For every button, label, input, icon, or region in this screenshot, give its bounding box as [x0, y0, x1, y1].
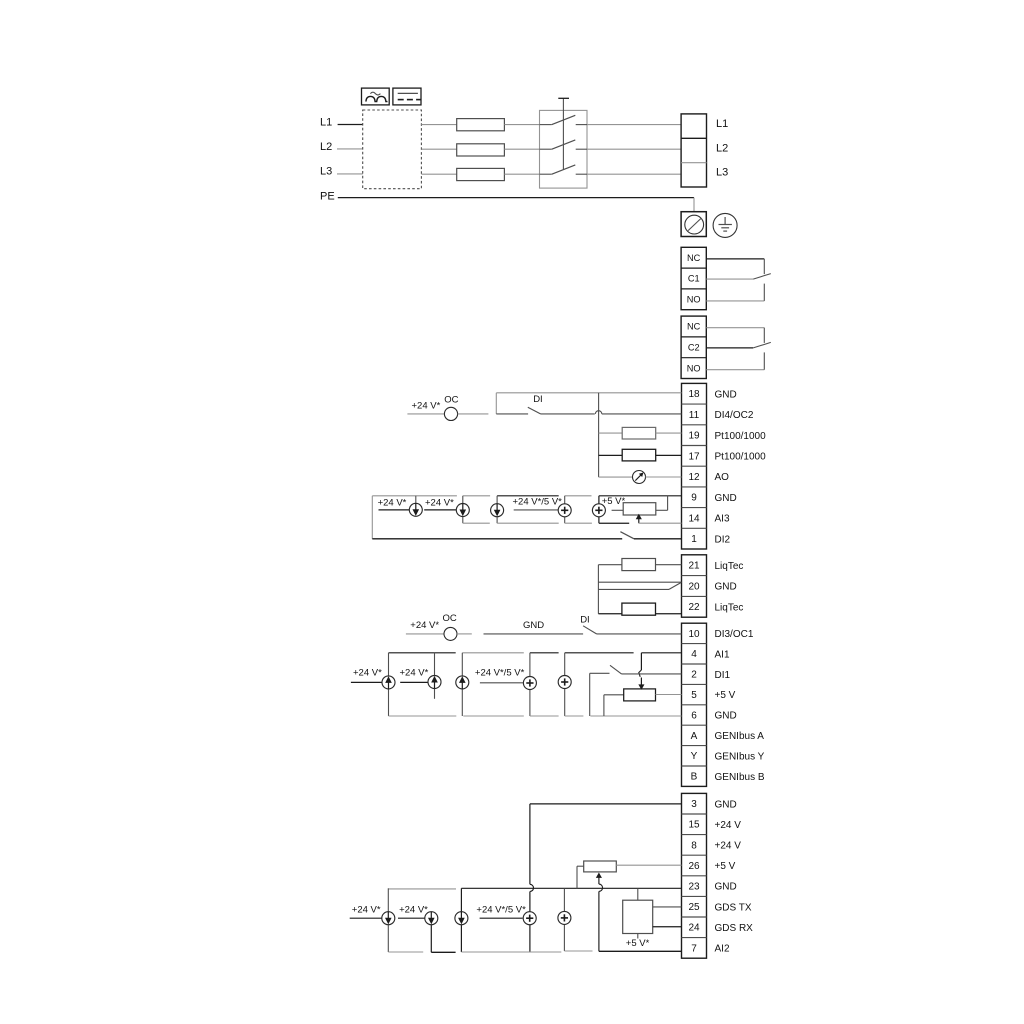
svg-text:5: 5: [691, 690, 697, 701]
svg-text:23: 23: [688, 882, 700, 893]
svg-text:AI1: AI1: [715, 649, 730, 660]
svg-text:22: 22: [688, 602, 700, 613]
svg-text:GDS TX: GDS TX: [715, 902, 752, 913]
svg-text:Y: Y: [691, 751, 698, 762]
svg-text:GENIbus Y: GENIbus Y: [715, 751, 765, 762]
svg-text:+24 V*/5 V*: +24 V*/5 V*: [513, 496, 563, 507]
svg-text:L2: L2: [716, 142, 728, 154]
svg-text:GND: GND: [715, 582, 737, 593]
svg-text:A: A: [691, 731, 698, 742]
svg-text:21: 21: [688, 561, 700, 572]
svg-text:NC: NC: [687, 322, 701, 332]
svg-text:NO: NO: [687, 295, 701, 305]
svg-text:24: 24: [688, 923, 700, 934]
svg-text:+24 V*: +24 V*: [378, 497, 407, 508]
svg-text:OC: OC: [444, 394, 458, 405]
svg-text:+24 V*: +24 V*: [399, 905, 428, 916]
svg-text:AI3: AI3: [715, 514, 730, 525]
svg-text:GND: GND: [523, 620, 544, 631]
svg-text:LiqTec: LiqTec: [715, 602, 744, 613]
svg-text:15: 15: [688, 820, 700, 831]
svg-text:26: 26: [688, 861, 700, 872]
svg-text:DI: DI: [533, 394, 543, 405]
svg-text:9: 9: [691, 493, 697, 504]
svg-text:+24 V*/5 V*: +24 V*/5 V*: [476, 905, 526, 916]
svg-text:OC: OC: [443, 613, 457, 624]
svg-text:GENIbus A: GENIbus A: [715, 731, 765, 742]
svg-text:GDS RX: GDS RX: [715, 923, 754, 934]
svg-text:GND: GND: [715, 389, 737, 400]
svg-text:L2: L2: [320, 141, 332, 153]
svg-text:8: 8: [691, 840, 697, 851]
svg-text:B: B: [691, 772, 698, 783]
svg-text:NO: NO: [687, 363, 701, 373]
svg-text:+24 V*: +24 V*: [412, 400, 441, 411]
svg-text:2: 2: [691, 670, 697, 681]
svg-text:19: 19: [688, 431, 700, 442]
svg-text:+5 V*: +5 V*: [626, 938, 650, 949]
svg-text:+24 V: +24 V: [715, 820, 742, 831]
svg-text:10: 10: [688, 629, 700, 640]
svg-text:Pt100/1000: Pt100/1000: [715, 451, 767, 462]
svg-text:PE: PE: [320, 191, 335, 203]
svg-text:DI1: DI1: [715, 670, 731, 681]
svg-text:GND: GND: [715, 493, 737, 504]
svg-text:14: 14: [688, 513, 700, 524]
svg-text:L1: L1: [716, 118, 728, 130]
svg-text:+24 V*: +24 V*: [410, 620, 439, 631]
svg-text:NC: NC: [687, 253, 701, 263]
svg-text:L1: L1: [320, 117, 332, 129]
svg-text:GND: GND: [715, 799, 737, 810]
svg-text:18: 18: [688, 389, 700, 400]
svg-text:DI: DI: [580, 614, 590, 625]
svg-text:17: 17: [688, 451, 700, 462]
svg-text:+5 V: +5 V: [715, 861, 736, 872]
svg-text:11: 11: [689, 410, 700, 421]
svg-text:C1: C1: [688, 274, 700, 284]
svg-text:25: 25: [688, 902, 700, 913]
svg-text:+24 V*: +24 V*: [352, 905, 381, 916]
svg-text:+5 V*: +5 V*: [602, 496, 626, 507]
svg-text:C2: C2: [688, 343, 700, 353]
svg-text:3: 3: [691, 799, 697, 810]
svg-text:DI2: DI2: [715, 534, 731, 545]
svg-text:4: 4: [691, 649, 697, 660]
svg-text:LiqTec: LiqTec: [715, 561, 744, 572]
svg-text:L3: L3: [320, 166, 332, 178]
svg-text:GND: GND: [715, 711, 737, 722]
svg-text:20: 20: [688, 581, 700, 592]
svg-text:Pt100/1000: Pt100/1000: [715, 431, 767, 442]
svg-text:+5 V: +5 V: [715, 690, 736, 701]
svg-text:7: 7: [691, 943, 697, 954]
svg-text:6: 6: [691, 710, 697, 721]
svg-text:+24 V*: +24 V*: [425, 497, 454, 508]
svg-text:DI3/OC1: DI3/OC1: [715, 629, 754, 640]
svg-text:+24 V*: +24 V*: [400, 668, 429, 679]
svg-text:+24 V*/5 V*: +24 V*/5 V*: [475, 668, 525, 679]
svg-text:+24 V*: +24 V*: [353, 668, 382, 679]
svg-text:GENIbus B: GENIbus B: [715, 772, 765, 783]
svg-text:DI4/OC2: DI4/OC2: [715, 410, 754, 421]
svg-text:L3: L3: [716, 167, 728, 179]
svg-text:+24 V: +24 V: [715, 841, 742, 852]
svg-text:12: 12: [688, 472, 700, 483]
svg-text:AO: AO: [715, 472, 730, 483]
svg-text:AI2: AI2: [715, 944, 730, 955]
svg-text:GND: GND: [715, 882, 737, 893]
svg-text:1: 1: [691, 534, 697, 545]
